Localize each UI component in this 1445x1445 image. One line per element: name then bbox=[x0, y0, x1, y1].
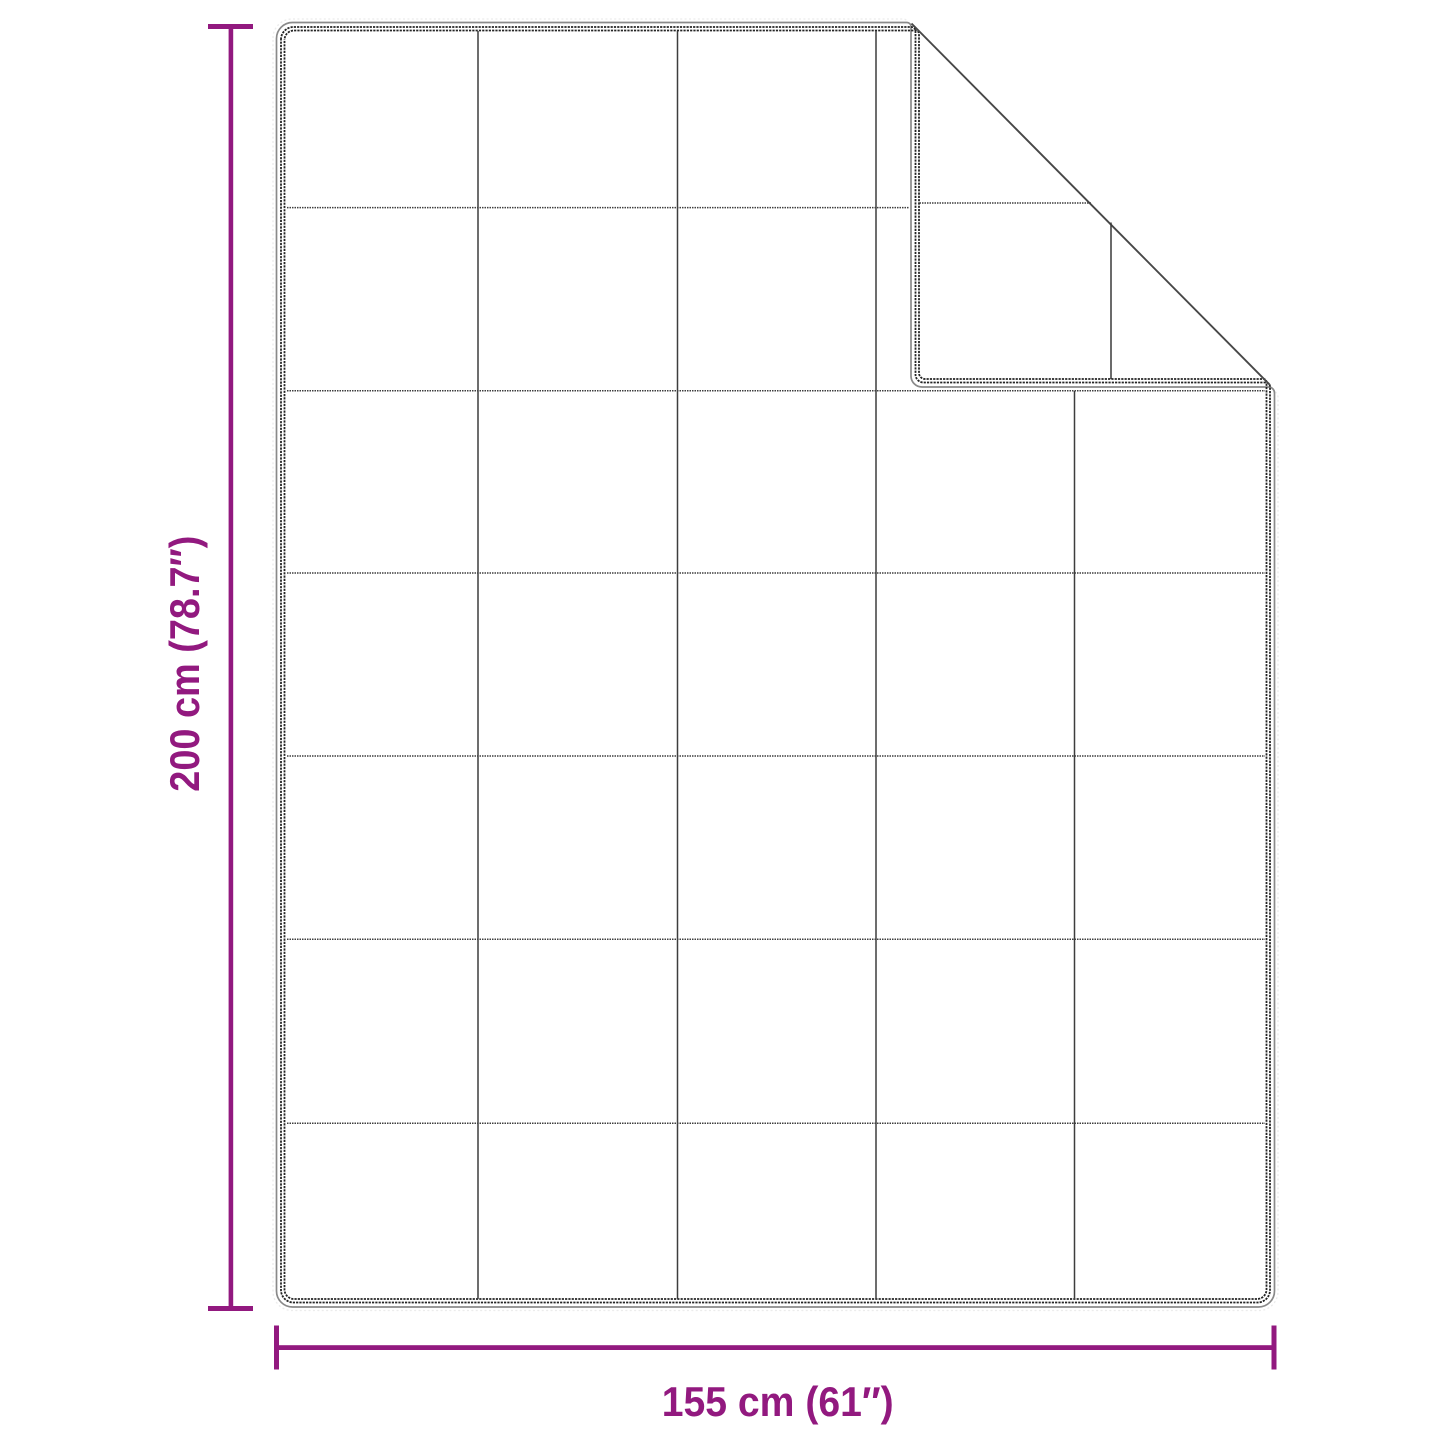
svg-text:200 cm (78.7″): 200 cm (78.7″) bbox=[161, 536, 208, 792]
svg-text:155 cm (61″): 155 cm (61″) bbox=[662, 1378, 894, 1425]
